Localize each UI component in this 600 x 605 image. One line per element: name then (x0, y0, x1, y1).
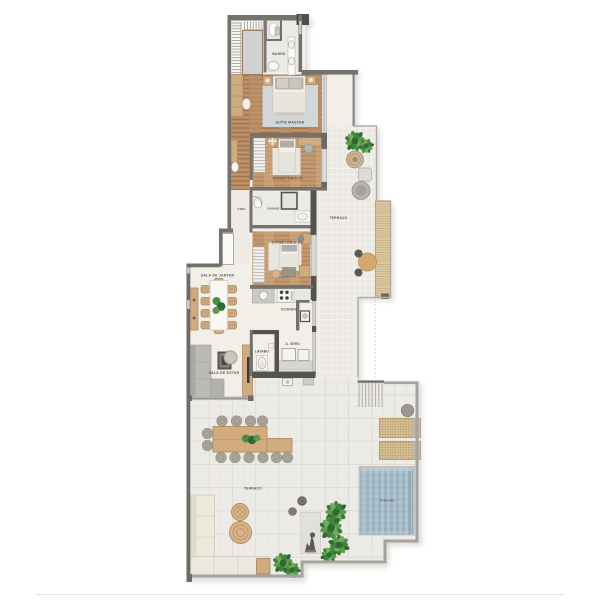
svg-text:SALA DE JANTAR: SALA DE JANTAR (201, 274, 235, 278)
svg-text:SUÍTE MASTER: SUÍTE MASTER (276, 120, 305, 125)
svg-text:CIRC.: CIRC. (237, 207, 246, 211)
svg-text:BANHO: BANHO (272, 52, 285, 56)
svg-text:DORMITÓRIO 02: DORMITÓRIO 02 (273, 176, 304, 181)
svg-text:TERRAÇO: TERRAÇO (244, 487, 262, 491)
svg-text:BANHO: BANHO (268, 207, 280, 211)
svg-text:A. SERV.: A. SERV. (286, 342, 301, 346)
svg-text:COZINHA: COZINHA (281, 308, 298, 312)
svg-text:PISCINA: PISCINA (380, 499, 395, 503)
svg-text:DORMITÓRIO 03: DORMITÓRIO 03 (272, 240, 303, 245)
svg-text:LAVABO: LAVABO (255, 350, 270, 354)
svg-text:SALA DE ESTAR: SALA DE ESTAR (209, 371, 240, 375)
svg-text:TERRAÇO: TERRAÇO (330, 216, 348, 220)
